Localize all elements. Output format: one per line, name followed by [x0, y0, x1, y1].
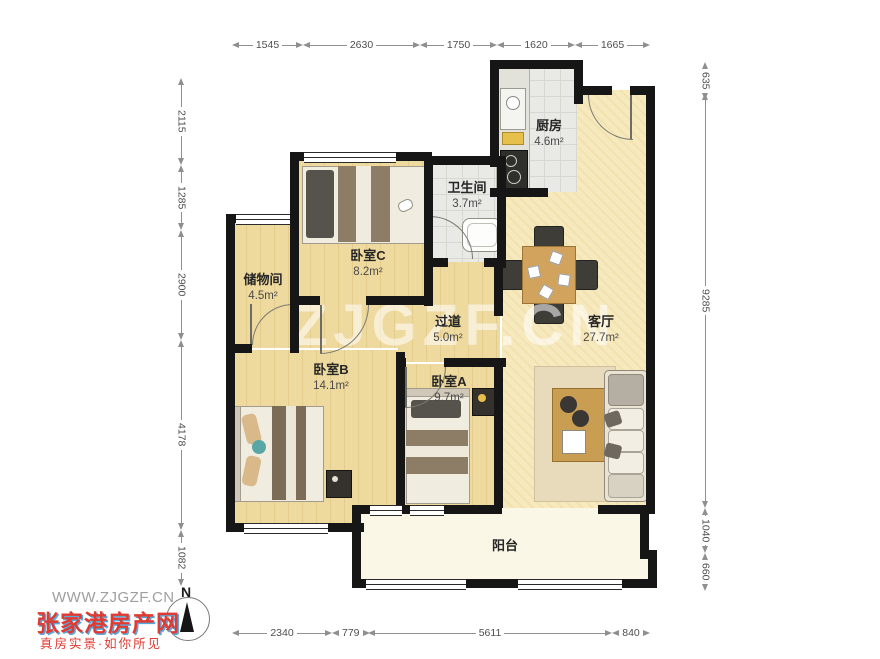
room-label-kitchen: 厨房 4.6m²: [517, 118, 581, 150]
bed-b-blanket-stripe: [286, 406, 296, 500]
lamp-icon: [332, 476, 338, 482]
dimension-right-4: 660: [698, 553, 712, 588]
room-name: 过道: [408, 314, 488, 331]
room-label-bedroom-c: 卧室C 8.2m²: [328, 248, 408, 280]
wall-balcony-top-4: [598, 505, 649, 514]
room-name: 客厅: [561, 314, 641, 331]
dimension-bottom-3: 5611: [368, 626, 612, 640]
room-label-balcony: 阳台: [465, 538, 545, 555]
dimension-right-2: 9285: [698, 93, 712, 508]
stove-burner-icon: [507, 170, 521, 184]
dimension-top-2: 2630: [303, 38, 420, 52]
room-label-storage: 储物间 4.5m²: [223, 272, 303, 304]
sink-basin-icon: [506, 96, 520, 110]
wall-bedroom-c-left: [290, 152, 299, 223]
entry-door-leaf: [630, 95, 632, 139]
wall-right: [646, 86, 655, 514]
wall-bathroom-bottom-left: [424, 258, 448, 267]
room-area: 5.0m²: [408, 331, 488, 346]
room-area: 9.7m²: [409, 391, 489, 406]
window-bedroom-b: [244, 523, 328, 534]
room-label-hallway: 过道 5.0m²: [408, 314, 488, 346]
bedroom-c-door-leaf: [320, 305, 322, 353]
watermark-slogan: 真房实景·如你所见: [40, 633, 162, 652]
room-area: 27.7m²: [561, 331, 641, 346]
room-name: 厨房: [517, 118, 581, 135]
room-name: 阳台: [465, 538, 545, 555]
dimension-top-4: 1620: [497, 38, 575, 52]
plate-icon: [527, 265, 541, 279]
floor-plan-page: { "watermark": { "url": "WWW.ZJGZF.CN", …: [0, 0, 880, 659]
dimension-left-2: 1285: [174, 165, 188, 230]
room-name: 储物间: [223, 272, 303, 289]
room-name: 卧室B: [291, 362, 371, 379]
wall-bedroom-divider: [396, 352, 405, 508]
room-name: 卧室A: [409, 374, 489, 391]
wall-living-left-stub: [494, 258, 503, 316]
dimension-right-3: 1040: [698, 508, 712, 553]
window-storage: [236, 214, 290, 225]
dimension-left-4: 4178: [174, 340, 188, 530]
wall-bedroom-a-right: [494, 358, 503, 508]
dimension-left-5: 1082: [174, 530, 188, 586]
vase-icon: [572, 410, 589, 427]
window-balcony-inner-2: [410, 505, 444, 516]
room-area: 14.1m²: [291, 379, 371, 394]
dining-chair-east: [574, 260, 598, 290]
stove-burner-icon: [505, 155, 517, 167]
wall-bedroom-a-top-left: [396, 358, 406, 367]
bed-b-cushion: [252, 440, 266, 454]
wall-bathroom-top: [424, 156, 505, 165]
wall-kitchen-left: [490, 60, 499, 167]
dimension-top-1: 1545: [232, 38, 303, 52]
storage-door-leaf: [250, 304, 252, 344]
dimension-left-1: 2115: [174, 78, 188, 165]
wall-kitchen-top: [490, 60, 583, 69]
dimension-bottom-4: 840: [612, 626, 650, 640]
wall-entry-left: [578, 86, 612, 95]
room-label-bathroom: 卫生间 3.7m²: [427, 180, 507, 212]
wall-left: [226, 214, 235, 532]
room-name: 卫生间: [427, 180, 507, 197]
room-area: 8.2m²: [328, 265, 408, 280]
room-label-living: 客厅 27.7m²: [561, 314, 641, 346]
dimension-right-1: 635: [698, 62, 712, 93]
room-area: 4.6m²: [517, 135, 581, 150]
room-label-bedroom-b: 卧室B 14.1m²: [291, 362, 371, 394]
dimension-left-3: 2900: [174, 230, 188, 340]
dimension-top-3: 1750: [420, 38, 497, 52]
window-balcony-inner-1: [370, 505, 402, 516]
dimension-top-5: 1665: [575, 38, 650, 52]
bathtub-inner: [467, 223, 497, 247]
wall-bedroom-c-bottom-right: [366, 296, 432, 305]
room-area: 4.5m²: [223, 289, 303, 304]
compass-needle-icon: [180, 602, 194, 632]
wall-balcony-top-3: [442, 505, 502, 514]
sofa-armrest: [608, 474, 644, 498]
tray: [562, 430, 586, 454]
window-balcony-1: [366, 579, 466, 590]
vase-icon: [560, 396, 577, 413]
plate-icon: [557, 273, 571, 287]
dimension-bottom-1: 2340: [232, 626, 332, 640]
room-area: 3.7m²: [427, 197, 507, 212]
wall-balcony-top-1: [352, 505, 372, 514]
sofa-chaise-cushion: [608, 374, 644, 406]
wall-bedroom-b-top: [226, 344, 252, 353]
wall-bedroom-c-right: [424, 156, 433, 306]
window-balcony-2: [518, 579, 622, 590]
room-label-bedroom-a: 卧室A 9.7m²: [409, 374, 489, 406]
wall-balcony-right-lower: [648, 550, 657, 588]
wall-bathroom-right: [497, 156, 506, 268]
room-name: 卧室C: [328, 248, 408, 265]
window-bedroom-c: [304, 152, 396, 163]
nightstand-bedroom-b: [326, 470, 352, 498]
compass-north-label: N: [181, 584, 191, 600]
dimension-bottom-2: 779: [332, 626, 368, 640]
bed-c-blanket-stripe: [356, 166, 371, 242]
bed-a-blanket-stripe: [406, 446, 468, 457]
bedroom-a-door-leaf: [405, 367, 407, 407]
bed-c-pillow: [306, 170, 334, 238]
wall-balcony-left: [352, 505, 361, 588]
wall-kitchen-right: [574, 60, 583, 104]
